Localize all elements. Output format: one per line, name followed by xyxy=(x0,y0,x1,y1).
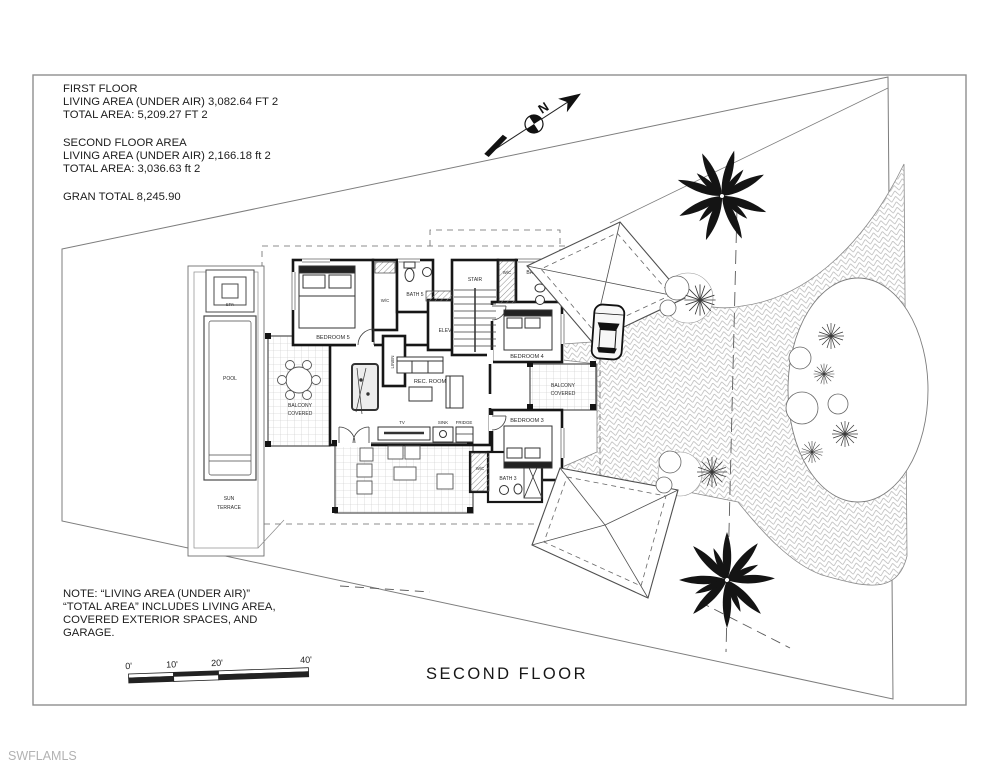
sun-terrace-label-2: TERRACE xyxy=(217,505,242,511)
fridge-label: FRIDGE xyxy=(456,420,473,425)
sun-terrace-label-1: SUN xyxy=(224,496,235,502)
note-line4: GARAGE. xyxy=(63,627,114,639)
wc4-label: W/C xyxy=(503,270,512,275)
note-line1: NOTE: “LIVING AREA (UNDER AIR)” xyxy=(63,588,250,600)
bedroom3-label: BEDROOM 3 xyxy=(510,418,544,424)
balcony-right-label-2: COVERED xyxy=(551,391,576,397)
pool xyxy=(204,316,256,480)
balcony-right-label-1: BALCONY xyxy=(551,383,576,389)
sheet-title: SECOND FLOOR xyxy=(426,665,588,683)
second-floor-heading: SECOND FLOOR AREA xyxy=(63,137,187,149)
car xyxy=(591,304,625,360)
floorplan-page: SPA POOL SUN TERRACE xyxy=(0,0,995,768)
first-floor-total: TOTAL AREA: 5,209.27 FT 2 xyxy=(63,109,208,121)
wc5-label: W/C xyxy=(381,298,390,303)
linen-label: LINEN xyxy=(390,356,395,369)
spa-label: SPA xyxy=(226,302,235,307)
watermark: SWFLAMLS xyxy=(8,749,77,763)
sink-label: SINK xyxy=(438,420,448,425)
bath3-label: BATH 3 xyxy=(499,476,516,482)
bedroom5-label: BEDROOM 5 xyxy=(316,335,350,341)
balcony-left-label-1: BALCONY xyxy=(288,403,313,409)
scale-20: 20' xyxy=(211,658,223,668)
second-floor-total: TOTAL AREA: 3,036.63 ft 2 xyxy=(63,163,200,175)
tv-label: TV xyxy=(399,420,405,425)
rec-room-label: REC. ROOM xyxy=(414,379,447,385)
bedroom4-label: BEDROOM 4 xyxy=(510,354,544,360)
elev-label: ELEV xyxy=(439,328,452,334)
wc3-label: W/C xyxy=(476,466,485,471)
first-floor-heading: FIRST FLOOR xyxy=(63,83,137,95)
grand-total: GRAN TOTAL 8,245.90 xyxy=(63,191,181,203)
note-line2: “TOTAL AREA” INCLUDES LIVING AREA, xyxy=(63,601,276,613)
second-floor-living: LIVING AREA (UNDER AIR) 2,166.18 ft 2 xyxy=(63,150,271,162)
lawn-island xyxy=(788,278,928,502)
first-floor-living: LIVING AREA (UNDER AIR) 3,082.64 FT 2 xyxy=(63,96,278,108)
scale-0: 0' xyxy=(125,661,132,671)
bath5-label: BATH 5 xyxy=(406,292,423,298)
scale-40: 40' xyxy=(300,655,312,665)
stair-label: STAIR xyxy=(468,277,483,283)
pool-label: POOL xyxy=(223,376,237,382)
note-line3: COVERED EXTERIOR SPACES, AND xyxy=(63,614,257,626)
scale-10: 10' xyxy=(166,659,178,669)
balcony-left-label-2: COVERED xyxy=(288,411,313,417)
site-plan-drawing: SPA POOL SUN TERRACE xyxy=(0,0,995,768)
